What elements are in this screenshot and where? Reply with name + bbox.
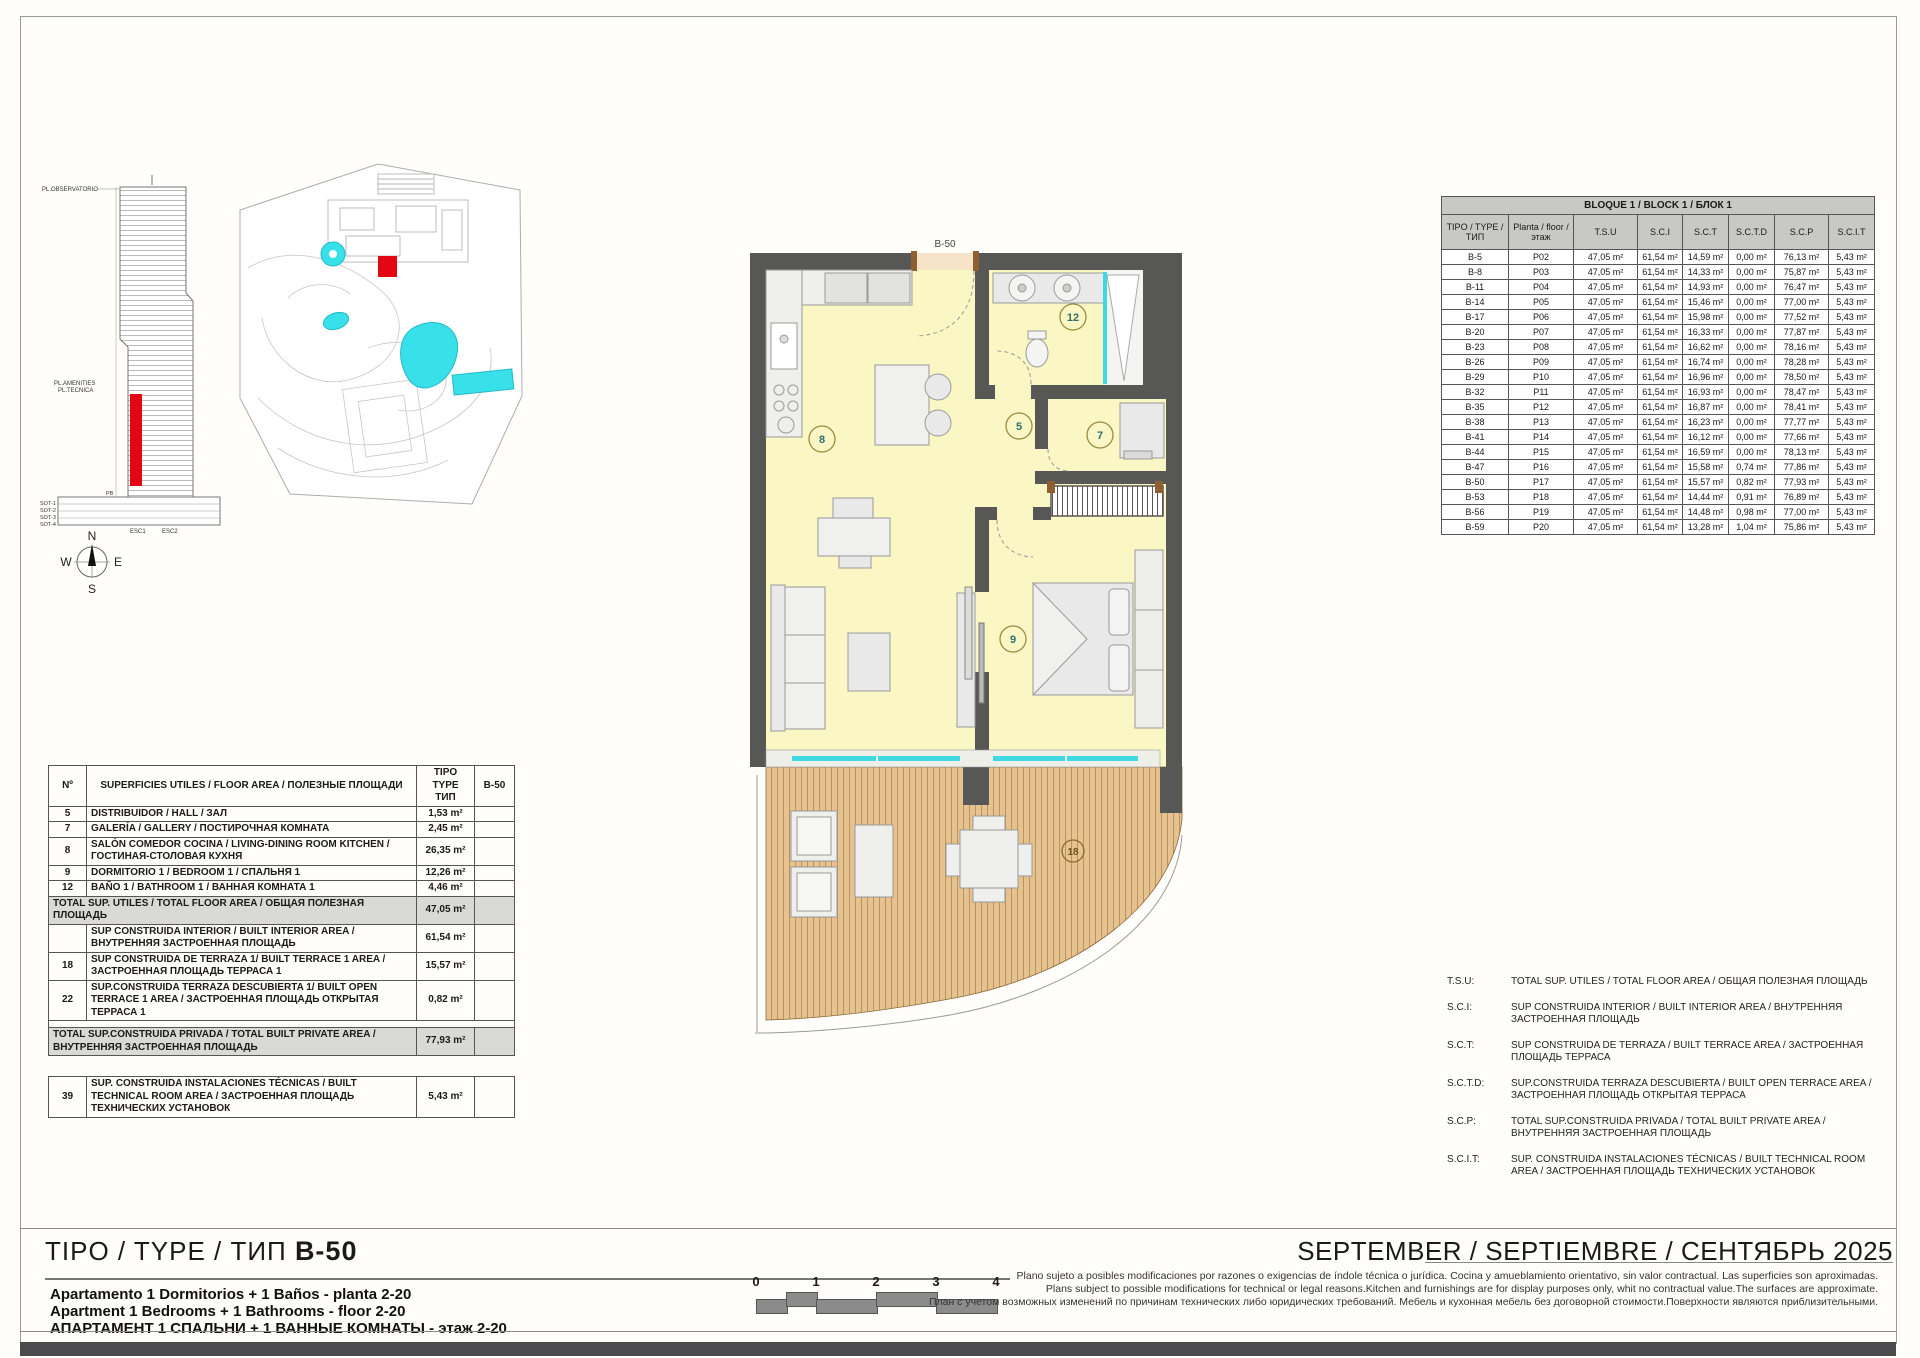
block-table-cell: 76,13 m² xyxy=(1775,250,1829,265)
legend-text: TOTAL SUP. UTILES / TOTAL FLOOR AREA / О… xyxy=(1511,976,1887,989)
block-table-cell: 77,52 m² xyxy=(1775,310,1829,325)
block-table-cell: 61,54 m² xyxy=(1638,250,1683,265)
type-code: B-50 xyxy=(295,1236,358,1266)
block-table-cell: 5,43 m² xyxy=(1829,370,1875,385)
block-table-cell: 13,28 m² xyxy=(1683,520,1729,535)
legend-item: S.C.T.D:SUP.CONSTRUIDA TERRAZA DESCUBIER… xyxy=(1447,1078,1887,1103)
block-table-row: B-14P0547,05 m²61,54 m²15,46 m²0,00 m²77… xyxy=(1442,295,1875,310)
block-table-cell: 47,05 m² xyxy=(1574,385,1638,400)
block-table-cell: 47,05 m² xyxy=(1574,310,1638,325)
block-table-cell: 15,58 m² xyxy=(1683,460,1729,475)
block-table-cell: P15 xyxy=(1509,445,1574,460)
block-table-cell: 5,43 m² xyxy=(1829,295,1875,310)
wardrobe-post-right xyxy=(1155,481,1163,493)
area-table-header-row: Nº SUPERFICIES UTILES / FLOOR AREA / ПОЛ… xyxy=(49,766,515,807)
technical-area-row: 39 SUP. CONSTRUIDA INSTALACIONES TÉCNICA… xyxy=(49,1077,515,1118)
block-table-cell: B-59 xyxy=(1442,520,1509,535)
area-row-no: 22 xyxy=(49,980,87,1021)
block-table-cell: 5,43 m² xyxy=(1829,250,1875,265)
block-table-cell: B-26 xyxy=(1442,355,1509,370)
area-table-body: 5DISTRIBUIDOR / HALL / ЗАЛ1,53 m²7GALERÍ… xyxy=(49,806,515,1056)
block-table-cell: 16,87 m² xyxy=(1683,400,1729,415)
area-empty-cell xyxy=(475,881,515,897)
block-table-row: B-35P1247,05 m²61,54 m²16,87 m²0,00 m²78… xyxy=(1442,400,1875,415)
area-header-tipo: TIPO TYPE ТИП xyxy=(417,766,475,807)
block-table-row: B-50P1747,05 m²61,54 m²15,57 m²0,82 m²77… xyxy=(1442,475,1875,490)
block-table-cell: 61,54 m² xyxy=(1638,460,1683,475)
block-table-row: B-32P1147,05 m²61,54 m²16,93 m²0,00 m²78… xyxy=(1442,385,1875,400)
legend-abbr: S.C.T.D: xyxy=(1447,1078,1511,1103)
room-number-terrace: 18 xyxy=(1067,847,1079,858)
compass-s: S xyxy=(88,582,96,596)
block-table-cell: 5,43 m² xyxy=(1829,520,1875,535)
block-table-cell: P14 xyxy=(1509,430,1574,445)
block-table-cell: 77,93 m² xyxy=(1775,475,1829,490)
block-table-cell: B-23 xyxy=(1442,340,1509,355)
terrace-glazing xyxy=(766,750,1160,767)
legend-text: SUP CONSTRUIDA DE TERRAZA / BUILT TERRAC… xyxy=(1511,1040,1887,1065)
bottom-dark-band xyxy=(20,1342,1896,1356)
block-table-cell: 61,54 m² xyxy=(1638,400,1683,415)
area-table-row xyxy=(49,1021,515,1028)
area-table-row: TOTAL SUP. UTILES / TOTAL FLOOR AREA / О… xyxy=(49,896,515,924)
block-table-row: B-5P0247,05 m²61,54 m²14,59 m²0,00 m²76,… xyxy=(1442,250,1875,265)
unit-description-ru: АПАРТАМЕНТ 1 СПАЛЬНИ + 1 ВАННЫЕ КОМНАТЫ … xyxy=(50,1320,507,1337)
label-pb: PB xyxy=(106,491,114,497)
block-table-cell: 75,87 m² xyxy=(1775,265,1829,280)
round-pool-island xyxy=(329,250,337,258)
compass-e: E xyxy=(114,555,122,569)
block-column-header: S.C.T.D xyxy=(1729,215,1775,250)
door-post-right xyxy=(973,251,979,271)
area-row-value: 61,54 m² xyxy=(417,924,475,952)
technical-area-table: 39 SUP. CONSTRUIDA INSTALACIONES TÉCNICA… xyxy=(48,1076,515,1118)
block-table-cell: 61,54 m² xyxy=(1638,430,1683,445)
block-table-cell: B-11 xyxy=(1442,280,1509,295)
block-table-cell: 5,43 m² xyxy=(1829,430,1875,445)
area-empty-cell xyxy=(475,980,515,1021)
block-table-cell: 61,54 m² xyxy=(1638,505,1683,520)
area-row-desc: SUP.CONSTRUIDA TERRAZA DESCUBIERTA 1/ BU… xyxy=(87,980,417,1021)
block-table-cell: 61,54 m² xyxy=(1638,385,1683,400)
block-table-cell: P17 xyxy=(1509,475,1574,490)
technical-empty-cell xyxy=(475,1077,515,1118)
block-table-cell: P02 xyxy=(1509,250,1574,265)
area-row-desc: GALERÍA / GALLERY / ПОСТИРОЧНАЯ КОМНАТА xyxy=(87,822,417,838)
technical-desc: SUP. CONSTRUIDA INSTALACIONES TÉCNICAS /… xyxy=(87,1077,417,1118)
block-column-header: Planta / floor / этаж xyxy=(1509,215,1574,250)
block-table-cell: 78,41 m² xyxy=(1775,400,1829,415)
block-table-cell: 47,05 m² xyxy=(1574,250,1638,265)
legend-item: S.C.P:TOTAL SUP.CONSTRUIDA PRIVADA / TOT… xyxy=(1447,1116,1887,1141)
block-table-cell: 0,00 m² xyxy=(1729,415,1775,430)
block-table-cell: 77,86 m² xyxy=(1775,460,1829,475)
block-table-cell: 5,43 m² xyxy=(1829,325,1875,340)
block-table-cell: 16,59 m² xyxy=(1683,445,1729,460)
block-table-cell: 15,98 m² xyxy=(1683,310,1729,325)
area-row-no: 9 xyxy=(49,865,87,881)
block-column-header: S.C.I xyxy=(1638,215,1683,250)
block-table-cell: B-35 xyxy=(1442,400,1509,415)
room-number-bath: 12 xyxy=(1067,312,1079,324)
block-table-cell: 76,47 m² xyxy=(1775,280,1829,295)
block-table-cell: B-38 xyxy=(1442,415,1509,430)
block-table-cell: 5,43 m² xyxy=(1829,310,1875,325)
footer-top-rule xyxy=(20,1228,1896,1229)
room-number-hall: 5 xyxy=(1016,421,1022,433)
block-table-cell: 47,05 m² xyxy=(1574,445,1638,460)
footer-bottom-rule xyxy=(20,1331,1896,1332)
block-table-cell: 0,00 m² xyxy=(1729,370,1775,385)
block-table-row: B-29P1047,05 m²61,54 m²16,96 m²0,00 m²78… xyxy=(1442,370,1875,385)
block-table-cell: B-32 xyxy=(1442,385,1509,400)
block-table-cell: 47,05 m² xyxy=(1574,325,1638,340)
block-table-cell: B-47 xyxy=(1442,460,1509,475)
block-table-cell: 47,05 m² xyxy=(1574,490,1638,505)
block-table-cell: B-53 xyxy=(1442,490,1509,505)
legend-abbr: T.S.U: xyxy=(1447,976,1511,989)
block-table-row: B-53P1847,05 m²61,54 m²14,44 m²0,91 m²76… xyxy=(1442,490,1875,505)
block-table-cell: B-5 xyxy=(1442,250,1509,265)
legend-text: SUP. CONSTRUIDA INSTALACIONES TÉCNICAS /… xyxy=(1511,1154,1887,1179)
block-table-cell: 5,43 m² xyxy=(1829,400,1875,415)
gallery-unit xyxy=(1120,403,1164,458)
block-table-cell: 5,43 m² xyxy=(1829,445,1875,460)
block-table-cell: 61,54 m² xyxy=(1638,295,1683,310)
legend-text: SUP.CONSTRUIDA TERRAZA DESCUBIERTA / BUI… xyxy=(1511,1078,1887,1103)
block-table-row: B-41P1447,05 m²61,54 m²16,12 m²0,00 m²77… xyxy=(1442,430,1875,445)
area-table-row: 8SALÓN COMEDOR COCINA / LIVING-DINING RO… xyxy=(49,837,515,865)
block-table-cell: 16,93 m² xyxy=(1683,385,1729,400)
block-table-cell: 5,43 m² xyxy=(1829,340,1875,355)
block-table-cell: 77,87 m² xyxy=(1775,325,1829,340)
area-row-no: 5 xyxy=(49,806,87,822)
legend-item: S.C.I.T:SUP. CONSTRUIDA INSTALACIONES TÉ… xyxy=(1447,1154,1887,1179)
area-row-no: 8 xyxy=(49,837,87,865)
label-observatorio: PL.OBSERVATORIO xyxy=(42,187,98,193)
block-table-cell: 47,05 m² xyxy=(1574,415,1638,430)
block-table-cell: 78,16 m² xyxy=(1775,340,1829,355)
block-table-cell: 47,05 m² xyxy=(1574,505,1638,520)
plan-sheet-page: PL.OBSERVATORIO PL.AMENITIES PL.TECNICA … xyxy=(0,0,1920,1358)
block-table-cell: P07 xyxy=(1509,325,1574,340)
site-plan xyxy=(228,148,558,528)
block-table-cell: 14,48 m² xyxy=(1683,505,1729,520)
block-table-cell: 77,00 m² xyxy=(1775,505,1829,520)
highlighted-floors-strip xyxy=(130,394,142,486)
room-number-living: 8 xyxy=(819,434,825,446)
block-table-cell: 5,43 m² xyxy=(1829,475,1875,490)
block-table-cell: 16,62 m² xyxy=(1683,340,1729,355)
block-table-cell: B-20 xyxy=(1442,325,1509,340)
block-table-cell: 5,43 m² xyxy=(1829,490,1875,505)
block-table-cell: B-14 xyxy=(1442,295,1509,310)
gallery-shelf xyxy=(1124,451,1152,459)
entry-door-opening xyxy=(915,253,975,270)
block-table-cell: 0,00 m² xyxy=(1729,430,1775,445)
block-column-header: S.C.P xyxy=(1775,215,1829,250)
block-table-cell: 77,00 m² xyxy=(1775,295,1829,310)
block-table-row: B-44P1547,05 m²61,54 m²16,59 m²0,00 m²78… xyxy=(1442,445,1875,460)
block-table-cell: P16 xyxy=(1509,460,1574,475)
block-table-cell: 61,54 m² xyxy=(1638,520,1683,535)
block-table-cell: B-29 xyxy=(1442,370,1509,385)
area-row-value: 12,26 m² xyxy=(417,865,475,881)
area-table-row: 9DORMITORIO 1 / BEDROOM 1 / СПАЛЬНЯ 112,… xyxy=(49,865,515,881)
floor-plan: B-50 xyxy=(735,235,1210,1115)
block-table-cell: 61,54 m² xyxy=(1638,445,1683,460)
legend-abbr: S.C.T: xyxy=(1447,1040,1511,1065)
label-tecnica: PL.TECNICA xyxy=(58,388,93,394)
compass-w: W xyxy=(60,555,72,569)
block-column-header: S.C.I.T xyxy=(1829,215,1875,250)
block-table-cell: B-56 xyxy=(1442,505,1509,520)
block-table-cell: 5,43 m² xyxy=(1829,505,1875,520)
label-esc2: ESC2 xyxy=(162,529,178,535)
block-table-cell: 0,00 m² xyxy=(1729,295,1775,310)
legend-abbr: S.C.P: xyxy=(1447,1116,1511,1141)
legend-item: S.C.T:SUP CONSTRUIDA DE TERRAZA / BUILT … xyxy=(1447,1040,1887,1065)
area-row-no: 18 xyxy=(49,952,87,980)
block-table-cell: 5,43 m² xyxy=(1829,355,1875,370)
block-table-cell: 16,23 m² xyxy=(1683,415,1729,430)
block-table-cell: 0,00 m² xyxy=(1729,445,1775,460)
block-column-header: S.C.T xyxy=(1683,215,1729,250)
area-row-value: 4,46 m² xyxy=(417,881,475,897)
block-table-cell: P05 xyxy=(1509,295,1574,310)
block-column-header: TIPO / TYPE / ТИП xyxy=(1442,215,1509,250)
block-table-cell: 78,47 m² xyxy=(1775,385,1829,400)
block-table-cell: 47,05 m² xyxy=(1574,460,1638,475)
block-table-cell: 0,98 m² xyxy=(1729,505,1775,520)
area-row-value: 0,82 m² xyxy=(417,980,475,1021)
abbreviations-legend: T.S.U:TOTAL SUP. UTILES / TOTAL FLOOR AR… xyxy=(1447,976,1887,1192)
room-number-gallery: 7 xyxy=(1097,430,1103,442)
block-table-header-row: TIPO / TYPE / ТИПPlanta / floor / этажT.… xyxy=(1442,215,1875,250)
area-row-desc: SUP CONSTRUIDA DE TERRAZA 1/ BUILT TERRA… xyxy=(87,952,417,980)
door-post-left xyxy=(911,251,917,271)
block-table-cell: 14,59 m² xyxy=(1683,250,1729,265)
block-table-cell: 47,05 m² xyxy=(1574,520,1638,535)
block-table-cell: P11 xyxy=(1509,385,1574,400)
block-table-cell: B-8 xyxy=(1442,265,1509,280)
block-table-row: B-47P1647,05 m²61,54 m²15,58 m²0,74 m²77… xyxy=(1442,460,1875,475)
area-empty-cell xyxy=(475,837,515,865)
compass-n: N xyxy=(88,529,97,543)
legend-abbr: S.C.I: xyxy=(1447,1002,1511,1027)
block-table-cell: 0,00 m² xyxy=(1729,250,1775,265)
label-esc1: ESC1 xyxy=(130,529,146,535)
block-table-cell: 0,00 m² xyxy=(1729,310,1775,325)
shower-glass xyxy=(1103,272,1107,384)
block-table-cell: 75,86 m² xyxy=(1775,520,1829,535)
block-table-cell: 61,54 m² xyxy=(1638,310,1683,325)
block-table-cell: 0,00 m² xyxy=(1729,325,1775,340)
block-table-cell: 16,12 m² xyxy=(1683,430,1729,445)
block-table-cell: 14,93 m² xyxy=(1683,280,1729,295)
block-table-cell: P12 xyxy=(1509,400,1574,415)
type-title: TIPO / TYPE / ТИП B-50 xyxy=(45,1236,357,1267)
wardrobe-hatched xyxy=(1051,486,1163,516)
block-table-cell: 61,54 m² xyxy=(1638,325,1683,340)
area-total-value: 47,05 m² xyxy=(417,896,475,924)
block-table-cell: 5,43 m² xyxy=(1829,265,1875,280)
type-title-label: TIPO / TYPE / ТИП xyxy=(45,1236,295,1266)
block-table-cell: P20 xyxy=(1509,520,1574,535)
area-empty-cell xyxy=(475,1028,515,1056)
block-areas-table: BLOQUE 1 / BLOCK 1 / БЛОК 1 TIPO / TYPE … xyxy=(1441,196,1875,535)
area-row-no: 12 xyxy=(49,881,87,897)
block-table-cell: 0,00 m² xyxy=(1729,280,1775,295)
block-table-cell: P06 xyxy=(1509,310,1574,325)
area-table-row: 18SUP CONSTRUIDA DE TERRAZA 1/ BUILT TER… xyxy=(49,952,515,980)
block-table-row: B-26P0947,05 m²61,54 m²16,74 m²0,00 m²78… xyxy=(1442,355,1875,370)
area-table-row: TOTAL SUP.CONSTRUIDA PRIVADA / TOTAL BUI… xyxy=(49,1028,515,1056)
label-amenities: PL.AMENITIES xyxy=(54,381,95,387)
block-table-cell: 61,54 m² xyxy=(1638,340,1683,355)
technical-value: 5,43 m² xyxy=(417,1077,475,1118)
block-table-cell: B-44 xyxy=(1442,445,1509,460)
area-empty-cell xyxy=(475,865,515,881)
block-table-row: B-17P0647,05 m²61,54 m²15,98 m²0,00 m²77… xyxy=(1442,310,1875,325)
block-table-cell: P10 xyxy=(1509,370,1574,385)
area-total-label: TOTAL SUP. UTILES / TOTAL FLOOR AREA / О… xyxy=(49,896,417,924)
block-table-cell: 78,50 m² xyxy=(1775,370,1829,385)
block-table-cell: 61,54 m² xyxy=(1638,415,1683,430)
block-table-cell: 1,04 m² xyxy=(1729,520,1775,535)
block-table-cell: 78,13 m² xyxy=(1775,445,1829,460)
area-row-desc: BAÑO 1 / BATHROOM 1 / ВАННАЯ КОМНАТА 1 xyxy=(87,881,417,897)
area-total-label: TOTAL SUP.CONSTRUIDA PRIVADA / TOTAL BUI… xyxy=(49,1028,417,1056)
block-table-row: B-56P1947,05 m²61,54 m²14,48 m²0,98 m²77… xyxy=(1442,505,1875,520)
unit-description-es: Apartamento 1 Dormitorios + 1 Baños - pl… xyxy=(50,1286,507,1303)
label-sot1: SOT-1 xyxy=(40,501,56,507)
unit-description: Apartamento 1 Dormitorios + 1 Baños - pl… xyxy=(50,1286,507,1337)
disclaimer-ru: План с учетом возможных изменений по при… xyxy=(700,1296,1878,1309)
block-table-cell: P13 xyxy=(1509,415,1574,430)
area-row-no: 7 xyxy=(49,822,87,838)
legend-item: T.S.U:TOTAL SUP. UTILES / TOTAL FLOOR AR… xyxy=(1447,976,1887,989)
block-table-cell: B-41 xyxy=(1442,430,1509,445)
block-table-row: B-8P0347,05 m²61,54 m²14,33 m²0,00 m²75,… xyxy=(1442,265,1875,280)
area-total-value: 77,93 m² xyxy=(417,1028,475,1056)
area-row-no xyxy=(49,924,87,952)
block-table-cell: 47,05 m² xyxy=(1574,355,1638,370)
block-table-body: B-5P0247,05 m²61,54 m²14,59 m²0,00 m²76,… xyxy=(1442,250,1875,535)
sliding-door xyxy=(965,587,972,679)
legend-item: S.C.I:SUP CONSTRUIDA INTERIOR / BUILT IN… xyxy=(1447,1002,1887,1027)
block-table-cell: 14,44 m² xyxy=(1683,490,1729,505)
area-table-row: 7GALERÍA / GALLERY / ПОСТИРОЧНАЯ КОМНАТА… xyxy=(49,822,515,838)
block-table-cell: P19 xyxy=(1509,505,1574,520)
area-row-desc: DISTRIBUIDOR / HALL / ЗАЛ xyxy=(87,806,417,822)
technical-no: 39 xyxy=(49,1077,87,1118)
area-row-value: 26,35 m² xyxy=(417,837,475,865)
block-table-cell: 0,91 m² xyxy=(1729,490,1775,505)
legend-text: SUP CONSTRUIDA INTERIOR / BUILT INTERIOR… xyxy=(1511,1002,1887,1027)
block-table-cell: 47,05 m² xyxy=(1574,265,1638,280)
block-table-cell: 61,54 m² xyxy=(1638,475,1683,490)
area-empty-cell xyxy=(475,924,515,952)
block-table-row: B-20P0747,05 m²61,54 m²16,33 m²0,00 m²77… xyxy=(1442,325,1875,340)
legend-text: TOTAL SUP.CONSTRUIDA PRIVADA / TOTAL BUI… xyxy=(1511,1116,1887,1141)
block-table-cell: P09 xyxy=(1509,355,1574,370)
area-header-desc: SUPERFICIES UTILES / FLOOR AREA / ПОЛЕЗН… xyxy=(87,766,417,807)
area-table-row: 12BAÑO 1 / BATHROOM 1 / ВАННАЯ КОМНАТА 1… xyxy=(49,881,515,897)
area-table-row: 22SUP.CONSTRUIDA TERRAZA DESCUBIERTA 1/ … xyxy=(49,980,515,1021)
date-rule xyxy=(1425,1262,1893,1263)
area-empty-cell xyxy=(475,806,515,822)
block-table-row: B-59P2047,05 m²61,54 m²13,28 m²1,04 m²75… xyxy=(1442,520,1875,535)
area-row-value: 1,53 m² xyxy=(417,806,475,822)
block-column-header: T.S.U xyxy=(1574,215,1638,250)
block-table-cell: 0,82 m² xyxy=(1729,475,1775,490)
block-table-cell: 47,05 m² xyxy=(1574,475,1638,490)
area-row-desc: SALÓN COMEDOR COCINA / LIVING-DINING ROO… xyxy=(87,837,417,865)
unit-location-marker xyxy=(378,256,397,277)
legend-abbr: S.C.I.T: xyxy=(1447,1154,1511,1179)
block-table-row: B-11P0447,05 m²61,54 m²14,93 m²0,00 m²76… xyxy=(1442,280,1875,295)
block-table-cell: 0,00 m² xyxy=(1729,340,1775,355)
block-table-cell: B-17 xyxy=(1442,310,1509,325)
area-table-row: 5DISTRIBUIDOR / HALL / ЗАЛ1,53 m² xyxy=(49,806,515,822)
block-table-cell: 15,46 m² xyxy=(1683,295,1729,310)
block-table-cell: 61,54 m² xyxy=(1638,265,1683,280)
block-table-cell: P08 xyxy=(1509,340,1574,355)
block-table-cell: 14,33 m² xyxy=(1683,265,1729,280)
unit-description-en: Apartment 1 Bedrooms + 1 Bathrooms - flo… xyxy=(50,1303,507,1320)
block-table-cell: 5,43 m² xyxy=(1829,415,1875,430)
area-table-row: SUP CONSTRUIDA INTERIOR / BUILT INTERIOR… xyxy=(49,924,515,952)
block-table-cell: 16,96 m² xyxy=(1683,370,1729,385)
block-table-cell: 16,33 m² xyxy=(1683,325,1729,340)
wardrobe-post-left xyxy=(1047,481,1055,493)
block-table-cell: 47,05 m² xyxy=(1574,295,1638,310)
block-table-cell: 5,43 m² xyxy=(1829,385,1875,400)
block-table-cell: 78,28 m² xyxy=(1775,355,1829,370)
block-table-cell: P03 xyxy=(1509,265,1574,280)
area-row-value: 15,57 m² xyxy=(417,952,475,980)
block-table-title: BLOQUE 1 / BLOCK 1 / БЛОК 1 xyxy=(1442,197,1875,215)
block-table-cell: 61,54 m² xyxy=(1638,280,1683,295)
unit-areas-table: Nº SUPERFICIES UTILES / FLOOR AREA / ПОЛ… xyxy=(48,765,515,1056)
block-table-row: B-38P1347,05 m²61,54 m²16,23 m²0,00 m²77… xyxy=(1442,415,1875,430)
block-table-cell: B-50 xyxy=(1442,475,1509,490)
area-row-desc: DORMITORIO 1 / BEDROOM 1 / СПАЛЬНЯ 1 xyxy=(87,865,417,881)
disclaimer-es: Plano sujeto a posibles modificaciones p… xyxy=(700,1270,1878,1283)
label-sot2: SOT-2 xyxy=(40,508,56,514)
unit-areas-section: Nº SUPERFICIES UTILES / FLOOR AREA / ПОЛ… xyxy=(48,765,514,1118)
block-table-cell: 61,54 m² xyxy=(1638,355,1683,370)
disclaimer: Plano sujeto a posibles modificaciones p… xyxy=(700,1270,1878,1309)
area-empty-cell xyxy=(475,952,515,980)
block-table-cell: 0,00 m² xyxy=(1729,265,1775,280)
block-table-cell: 47,05 m² xyxy=(1574,400,1638,415)
block-table-row: B-23P0847,05 m²61,54 m²16,62 m²0,00 m²78… xyxy=(1442,340,1875,355)
block-table-cell: 47,05 m² xyxy=(1574,370,1638,385)
area-empty-cell xyxy=(475,822,515,838)
block-table-cell: 47,05 m² xyxy=(1574,280,1638,295)
area-row-desc: SUP CONSTRUIDA INTERIOR / BUILT INTERIOR… xyxy=(87,924,417,952)
unit-label: B-50 xyxy=(934,239,956,250)
block-table-cell: 0,00 m² xyxy=(1729,385,1775,400)
block-table-cell: 61,54 m² xyxy=(1638,490,1683,505)
block-table-cell: P04 xyxy=(1509,280,1574,295)
area-empty-cell xyxy=(475,896,515,924)
compass: N S W E xyxy=(52,520,132,600)
block-table-cell: 47,05 m² xyxy=(1574,430,1638,445)
area-header-no: Nº xyxy=(49,766,87,807)
